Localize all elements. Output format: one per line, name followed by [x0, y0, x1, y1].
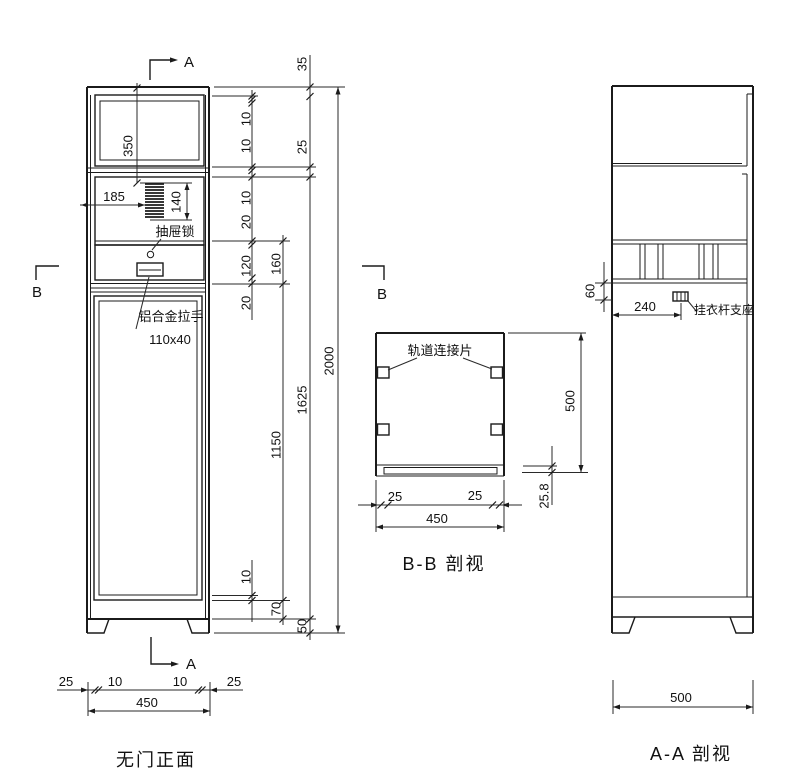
- dim-35: 35: [295, 57, 310, 71]
- front-view-geometry: [87, 87, 209, 633]
- dim-25-bb-right: 25: [468, 488, 482, 503]
- dim-10-right: 10: [173, 674, 187, 689]
- section-marker-a-top: A: [184, 54, 194, 71]
- dim-450-bb: 450: [426, 511, 448, 526]
- rail-connector-bottom-left: [378, 424, 390, 435]
- front-right-foot: [187, 619, 209, 633]
- dim-50: 50: [295, 619, 310, 633]
- dim-140: 140: [169, 191, 184, 213]
- front-bottom-dims: 25 10 10 25 450: [57, 674, 243, 716]
- dim-25-bb-left: 25: [388, 489, 402, 504]
- dim-20-b: 20: [239, 296, 254, 310]
- dim-chain-4: 2000: [322, 87, 341, 633]
- dim-500-aa: 500: [670, 690, 692, 705]
- dim-chain-2: 160 1150 70: [269, 235, 287, 625]
- dim-185: 185: [103, 189, 125, 204]
- dim-chain-1: 10 10 10 20 120 20 10: [239, 90, 256, 622]
- dim-10-a: 10: [239, 112, 254, 126]
- dim-10-c: 10: [239, 191, 254, 205]
- rail-connector-top-left: [378, 367, 390, 378]
- dim-1625: 1625: [295, 386, 310, 415]
- rail-connector-bottom-right: [491, 424, 503, 435]
- front-left-foot: [87, 619, 109, 633]
- hanger-support-label: 挂衣杆支座: [694, 302, 754, 317]
- vent-grille-icon: [145, 184, 164, 217]
- drawer-lock-icon: [147, 251, 153, 257]
- dim-25-8: 25.8: [537, 483, 552, 508]
- dim-240: 240: [634, 299, 656, 314]
- front-view-caption: 无门正面: [116, 750, 196, 770]
- dim-500-bb: 500: [563, 390, 578, 412]
- aa-section-caption: A-A 剖视: [650, 744, 732, 764]
- handle-label: 铝合金拉手: [138, 309, 203, 324]
- bb-section-caption: B-B 剖视: [402, 554, 485, 574]
- dim-25-right: 25: [227, 674, 241, 689]
- dim-10-d: 10: [239, 570, 254, 584]
- top-door-frame: [95, 95, 204, 166]
- rail-connector-label: 轨道连接片: [407, 343, 472, 358]
- section-marker-b-left: B: [32, 284, 42, 301]
- drawer-lock-label: 抽屉锁: [155, 224, 194, 239]
- aa-section-view: 挂衣杆支座 60 240 500 A-A 剖视: [583, 86, 755, 764]
- dim-350: 350: [121, 135, 136, 157]
- aa-right-foot: [730, 617, 753, 633]
- cabinet-drawing: A A B B 350 185 140 抽屉锁 铝合金拉手 110x40: [0, 0, 790, 773]
- dim-70: 70: [269, 602, 284, 616]
- dim-25: 25: [295, 140, 310, 154]
- bb-section-view: 轨道连接片 500 25.8 25 25 450 B-B 剖视: [358, 333, 588, 574]
- hanger-support-icon: [673, 292, 688, 301]
- dim-120: 120: [239, 255, 254, 277]
- section-marker-b-right: B: [377, 286, 387, 303]
- dim-20-a: 20: [239, 215, 254, 229]
- dim-10-left: 10: [108, 674, 122, 689]
- dim-1150: 1150: [269, 431, 284, 459]
- section-marker-a-bottom: A: [186, 656, 196, 673]
- handle-size-label: 110x40: [149, 332, 191, 347]
- dim-2000: 2000: [322, 347, 337, 376]
- dim-25-left: 25: [59, 674, 73, 689]
- rail-band: [612, 240, 747, 283]
- dim-450-front: 450: [136, 695, 158, 710]
- aa-left-foot: [612, 617, 635, 633]
- rail-connector-top-right: [491, 367, 503, 378]
- dim-chain-3: 35 25 1625 50: [295, 55, 314, 640]
- dim-60: 60: [583, 284, 598, 298]
- technical-drawing-page: A A B B 350 185 140 抽屉锁 铝合金拉手 110x40: [0, 0, 790, 773]
- dim-160: 160: [269, 253, 284, 275]
- dim-10-b: 10: [239, 139, 254, 153]
- bb-base-strip: [384, 468, 497, 475]
